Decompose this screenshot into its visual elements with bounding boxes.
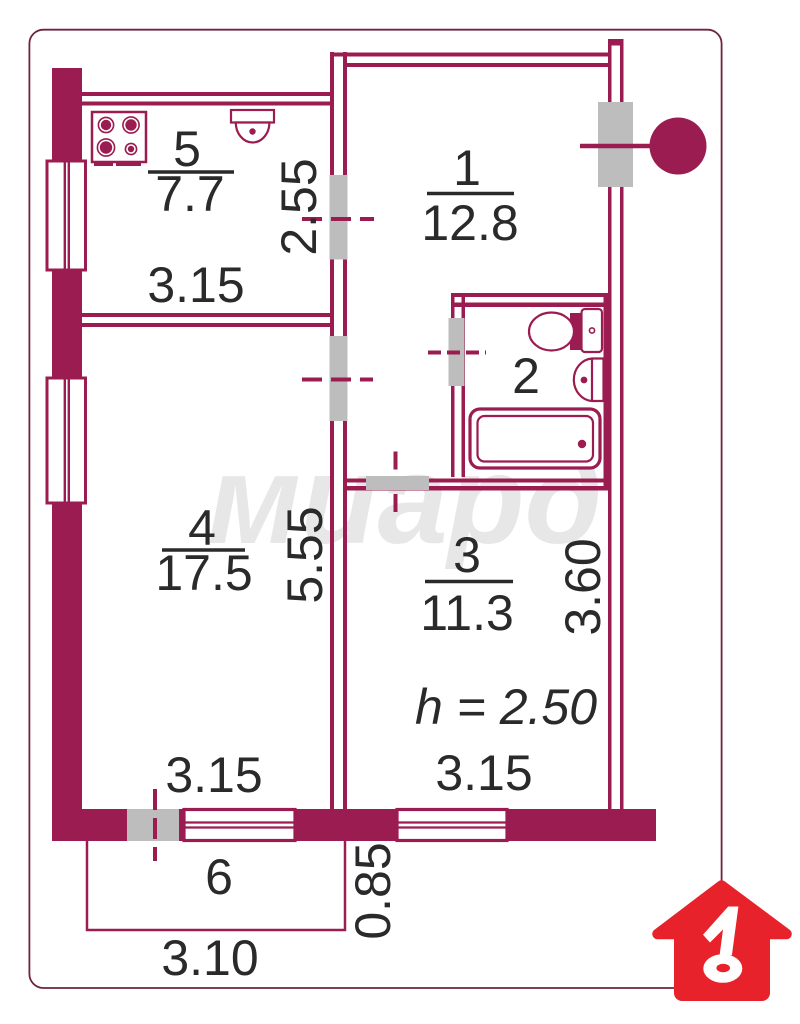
svg-text:3.15: 3.15 — [165, 747, 262, 803]
svg-text:2.55: 2.55 — [271, 158, 327, 255]
svg-text:3.10: 3.10 — [161, 930, 258, 986]
svg-text:3: 3 — [453, 527, 481, 583]
svg-text:h = 2.50: h = 2.50 — [415, 679, 597, 735]
svg-text:1: 1 — [453, 140, 481, 196]
svg-text:3.15: 3.15 — [435, 745, 532, 801]
svg-text:3.15: 3.15 — [147, 257, 244, 313]
svg-text:7.7: 7.7 — [155, 166, 225, 222]
svg-text:3.60: 3.60 — [555, 538, 611, 635]
svg-text:2: 2 — [512, 348, 540, 404]
svg-text:11.3: 11.3 — [420, 585, 514, 641]
svg-text:17.5: 17.5 — [155, 545, 252, 601]
svg-text:6: 6 — [205, 849, 233, 905]
svg-text:12.8: 12.8 — [421, 195, 518, 251]
svg-text:0.85: 0.85 — [345, 842, 401, 939]
svg-text:5.55: 5.55 — [277, 506, 333, 603]
